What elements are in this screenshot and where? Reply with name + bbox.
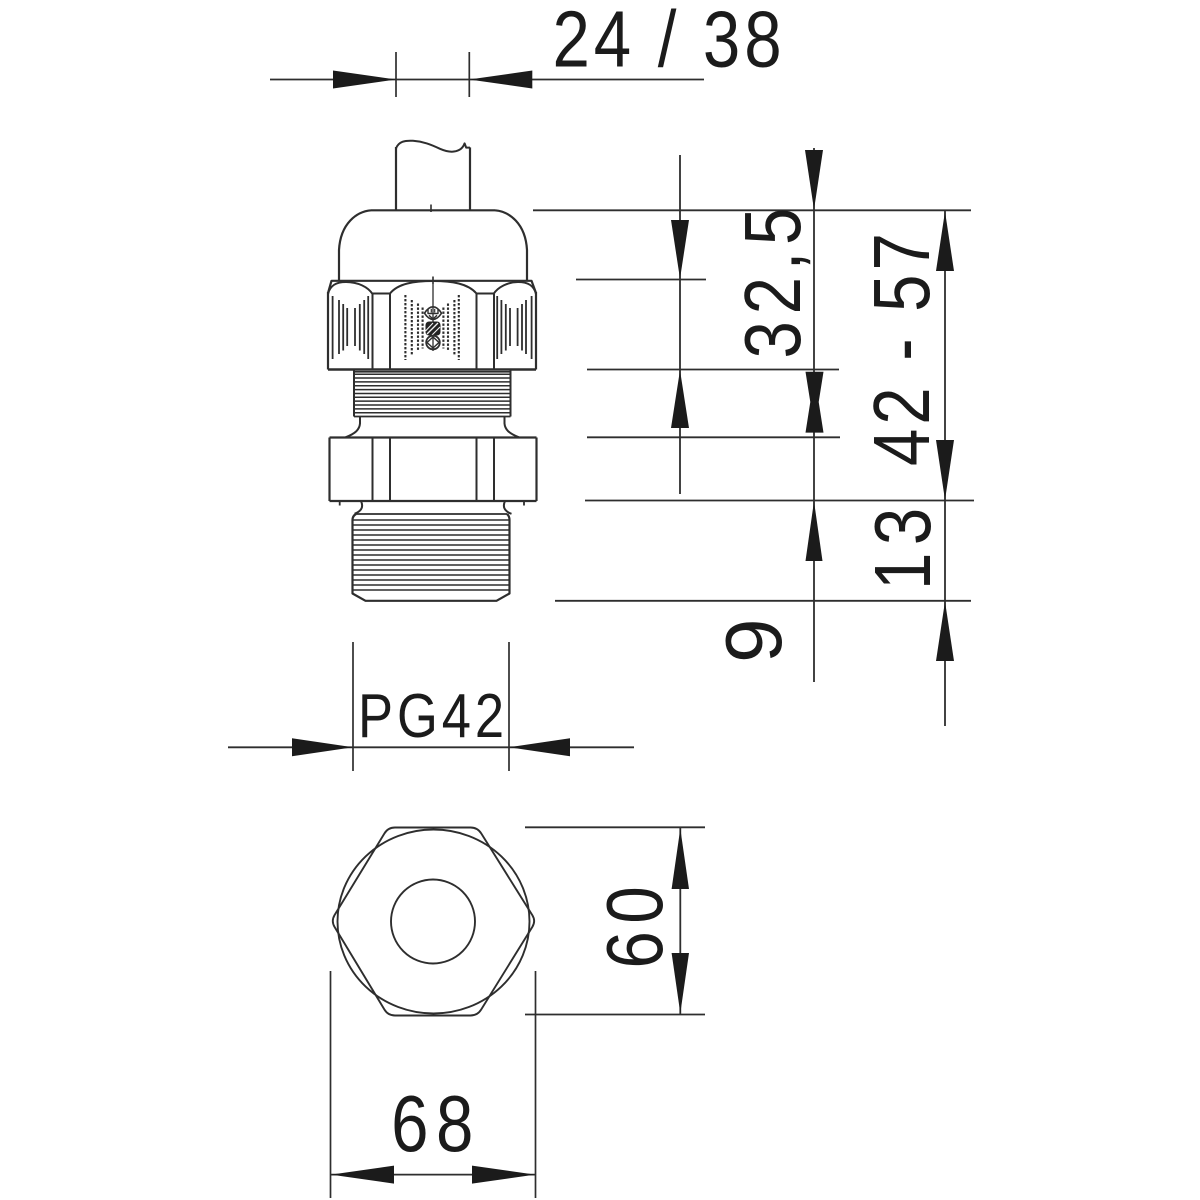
svg-text:42 - 57: 42 - 57 [856, 229, 946, 466]
svg-text:9: 9 [709, 614, 798, 663]
svg-text:24 / 38: 24 / 38 [552, 0, 785, 84]
svg-text:32,5: 32,5 [727, 201, 817, 359]
svg-text:PG42: PG42 [358, 682, 508, 751]
svg-text:60: 60 [589, 879, 679, 969]
svg-text:68: 68 [391, 1078, 481, 1168]
svg-text:13: 13 [857, 500, 947, 590]
